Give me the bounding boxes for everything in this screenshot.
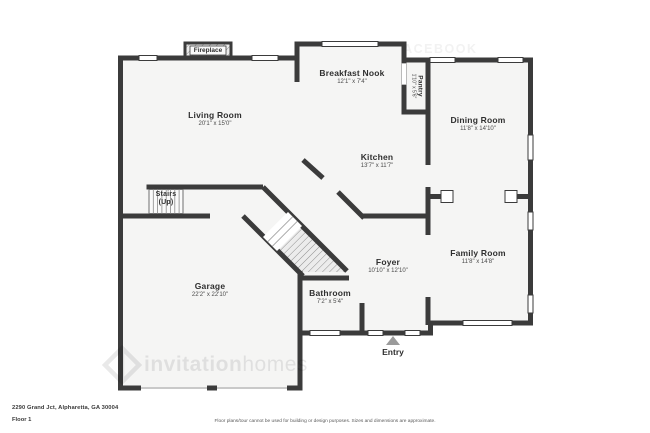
room-label-garage: Garage 22'2" x 22'10" (192, 281, 228, 298)
disclaimer-text: Floor plans/tour cannot be used for buil… (214, 419, 435, 424)
floor-plan-svg (0, 0, 650, 433)
entry-arrow-icon (386, 336, 400, 345)
pantry-door (402, 64, 407, 85)
fireplace-label: Fireplace (194, 47, 223, 54)
room-label-breakfast-nook: Breakfast Nook 12'1" x 7'4" (319, 68, 384, 85)
room-label-bathroom: Bathroom 7'2" x 5'4" (309, 288, 351, 305)
entry-label: Entry (382, 347, 404, 357)
room-label-kitchen: Kitchen 13'7" x 11'7" (361, 152, 394, 169)
room-label-living-room: Living Room 20'1" x 15'0" (188, 110, 242, 127)
room-label-stairs: Stairs (Up) (156, 191, 177, 207)
floor-number-label: Floor 1 (12, 417, 31, 423)
property-address: 2290 Grand Jct, Alpharetta, GA 30004 (12, 405, 118, 411)
floor-plan-page: FIND US ON FACEBOOK INVITATION HOMES (0, 0, 650, 433)
room-label-pantry: Pantry 1'10" x 5'6" (411, 74, 424, 99)
room-label-foyer: Foyer 10'10" x 12'10" (368, 257, 408, 274)
room-label-family-room: Family Room 11'8" x 14'8" (450, 248, 506, 265)
room-label-dining-room: Dining Room 11'8" x 14'10" (450, 115, 505, 132)
